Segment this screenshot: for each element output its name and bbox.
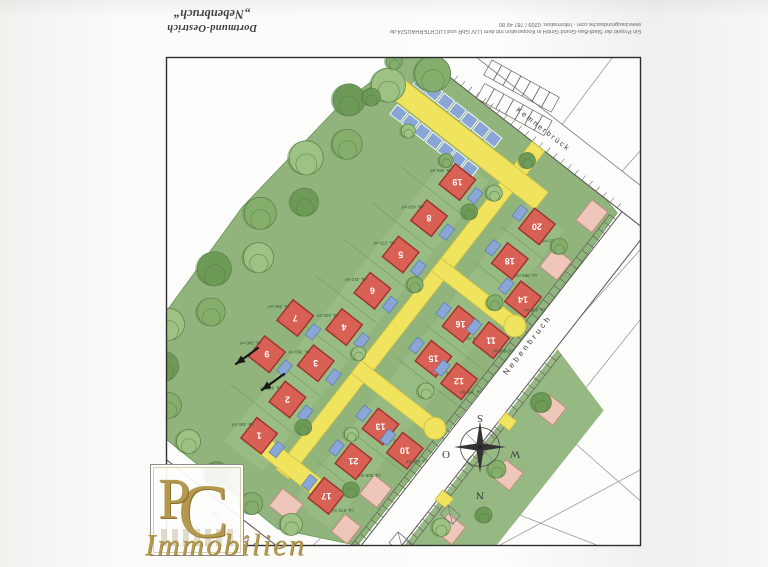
- compass-label-n: N: [476, 489, 484, 501]
- sidewalk-tick: [389, 561, 395, 566]
- lot-number: 14: [518, 294, 528, 304]
- lot-number: 16: [456, 319, 466, 329]
- lot-number: 7: [293, 313, 298, 323]
- compass-label-w: W: [509, 448, 520, 460]
- logo-monogram-p: P: [158, 465, 190, 532]
- lot-number: 6: [370, 286, 375, 296]
- credit-line-2: www.baugrundsache.com · Information: 020…: [384, 20, 641, 27]
- lot-number: 19: [452, 177, 462, 187]
- lot-number: 20: [532, 221, 542, 231]
- lot-area-label: ca. 400 m²: [405, 459, 427, 464]
- lot-number: 11: [486, 335, 496, 345]
- lot-area-label: ca. 410 m²: [345, 277, 367, 282]
- lot-number: 10: [400, 446, 410, 456]
- lot-area-label: ca. 450 m²: [429, 168, 451, 173]
- lot-number: 15: [428, 354, 438, 364]
- lot-area-label: ca. 385 m²: [515, 273, 537, 278]
- lot-area-label: ca. 325 m²: [359, 473, 381, 478]
- credit-line-1: Ein Projekt der Stadt-Bau-Grund GmbH in …: [384, 27, 641, 34]
- sidewalk-tick: [400, 547, 406, 552]
- lot-number: 17: [321, 491, 331, 501]
- lot-number: 9: [264, 349, 269, 359]
- lot-number: 21: [348, 456, 358, 466]
- lot-number: 3: [313, 358, 318, 368]
- lot-area-label: ca. 380 m²: [460, 389, 482, 394]
- lot-area-label: ca. 450 m²: [231, 422, 253, 427]
- sidewalk-tick: [395, 554, 401, 559]
- lot-number: 5: [398, 249, 403, 259]
- plan-title-city: Dortmund-Oestrich: [150, 22, 274, 33]
- plan-title-project: „Nebenbruch“: [150, 6, 274, 21]
- lot-area-label: ca. 390 m²: [267, 304, 289, 309]
- lot-area-label: ca. 370 m²: [332, 508, 354, 513]
- lot-area-label: ca. 430 m²: [316, 313, 338, 318]
- plan-title: Dortmund-Oestrich „Nebenbruch“: [150, 6, 274, 33]
- scanned-site-plan-page: 19ca. 450 m²8ca. 420 m²5ca. 375 m²6ca. 4…: [0, 0, 768, 567]
- map-clip-group: 19ca. 450 m²8ca. 420 m²5ca. 375 m²6ca. 4…: [36, 0, 731, 567]
- plan-credits: Ein Projekt der Stadt-Bau-Grund GmbH in …: [384, 20, 641, 34]
- compass-label-s: S: [477, 412, 483, 424]
- lot-number: 4: [342, 322, 347, 332]
- logo-subtitle: Immobilien: [145, 527, 306, 563]
- compass-label-e: O: [442, 448, 450, 460]
- lot-area-label: ca. 350 m²: [288, 349, 310, 354]
- lot-area-label: ca. 435 m²: [524, 308, 546, 313]
- sidewalk-tick: [349, 548, 355, 553]
- lot-area-label: ca. 395 m²: [492, 348, 514, 353]
- lot-area-label: ca. 340 m²: [239, 340, 261, 345]
- site-plan-drawing: 19ca. 450 m²8ca. 420 m²5ca. 375 m²6ca. 4…: [0, 0, 768, 567]
- lot-number: 18: [505, 256, 515, 266]
- lot-area-label: ca. 375 m²: [373, 241, 395, 246]
- lot-number: 2: [285, 394, 290, 404]
- lot-number: 12: [454, 376, 464, 386]
- lot-area-label: ca. 420 m²: [401, 204, 423, 209]
- lot-number: 13: [376, 421, 386, 431]
- lot-number: 8: [427, 213, 432, 223]
- lot-number: 1: [257, 431, 262, 441]
